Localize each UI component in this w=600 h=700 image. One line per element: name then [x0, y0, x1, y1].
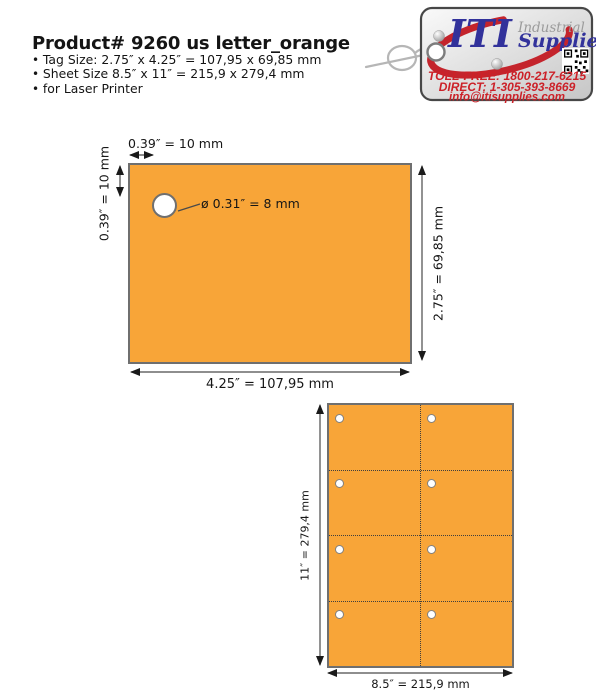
company-logo: ITI Industrial Supplies [360, 5, 596, 107]
sheet-hole-icon [427, 610, 436, 619]
sheet-height-label: 11″ = 279,4 mm [299, 486, 312, 586]
spec-printer: for Laser Printer [32, 82, 321, 96]
spec-list: Tag Size: 2.75″ x 4.25″ = 107,95 x 69,85… [32, 53, 321, 96]
sheet-hole-icon [427, 414, 436, 423]
tag-diagram [128, 163, 412, 364]
tag-width-label: 4.25″ = 107,95 mm [128, 377, 412, 392]
bead-icon [434, 31, 445, 42]
brand-iti-text: ITI [447, 11, 513, 56]
spec-sheet-size: Sheet Size 8.5″ x 11″ = 215,9 x 279,4 mm [32, 67, 321, 81]
product-spec-page: Product# 9260 us letter_orange Tag Size:… [0, 0, 600, 700]
sheet-hole-icon [427, 545, 436, 554]
logo-hole-icon [428, 44, 445, 61]
perforation-line-horizontal [329, 470, 512, 471]
tag-height-label: 2.75″ = 69,85 mm [431, 198, 446, 330]
spec-tag-size: Tag Size: 2.75″ x 4.25″ = 107,95 x 69,85… [32, 53, 321, 67]
perforation-line-horizontal [329, 535, 512, 536]
sheet-hole-icon [427, 479, 436, 488]
sheet-hole-icon [335, 545, 344, 554]
sheet-width-label: 8.5″ = 215,9 mm [327, 677, 514, 691]
perforation-line-horizontal [329, 601, 512, 602]
bead-icon [492, 59, 503, 70]
sheet-hole-icon [335, 610, 344, 619]
tag-hole-diameter-label: ø 0.31″ = 8 mm [201, 196, 300, 211]
tag-hole-icon [152, 193, 177, 218]
sheet-hole-icon [335, 479, 344, 488]
email-text: info@itisupplies.com [449, 92, 565, 104]
page-title: Product# 9260 us letter_orange [32, 33, 350, 54]
sheet-hole-icon [335, 414, 344, 423]
sheet-diagram [327, 403, 514, 668]
tag-hole-offset-x-label: 0.39″ = 10 mm [128, 136, 223, 151]
tag-hole-offset-y-label: 0.39″ = 10 mm [97, 146, 112, 242]
